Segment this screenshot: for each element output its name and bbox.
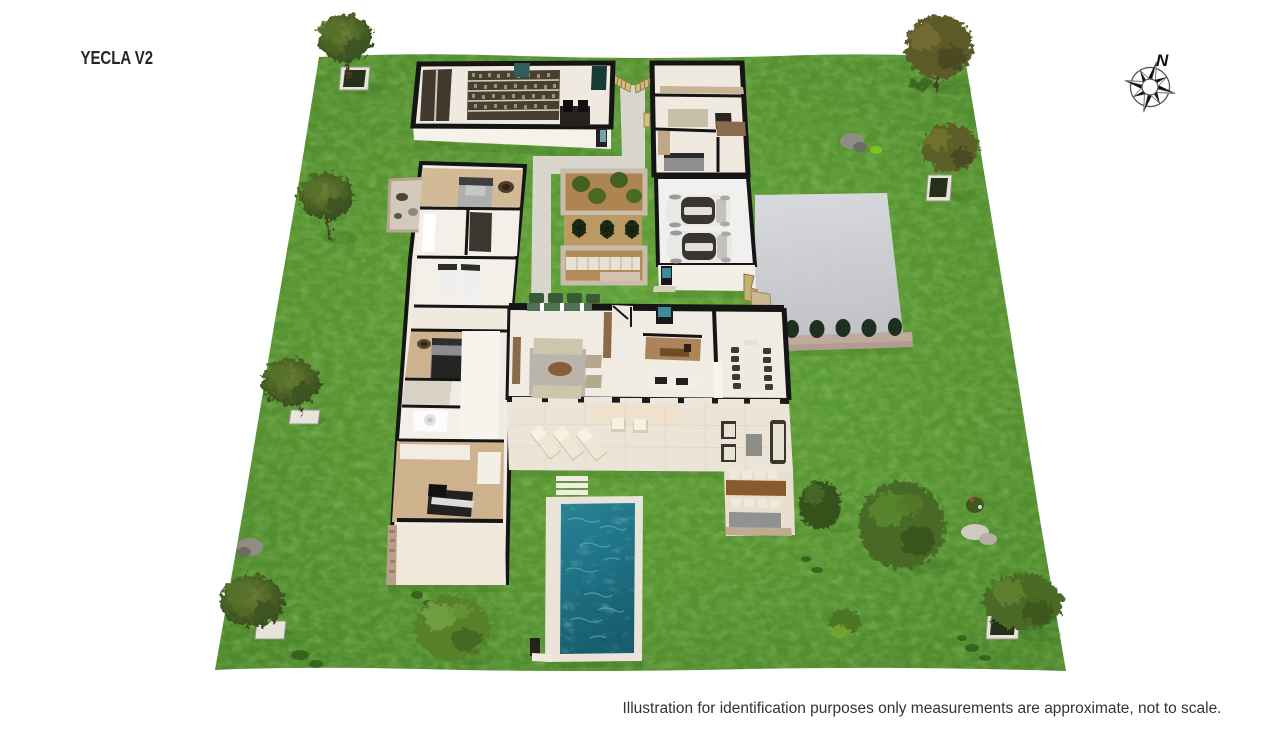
svg-text:Illustration for identificatio: Illustration for identification purposes… — [623, 700, 1222, 717]
svg-text:N: N — [1156, 51, 1169, 70]
svg-text:YECLA V2: YECLA V2 — [81, 48, 154, 68]
